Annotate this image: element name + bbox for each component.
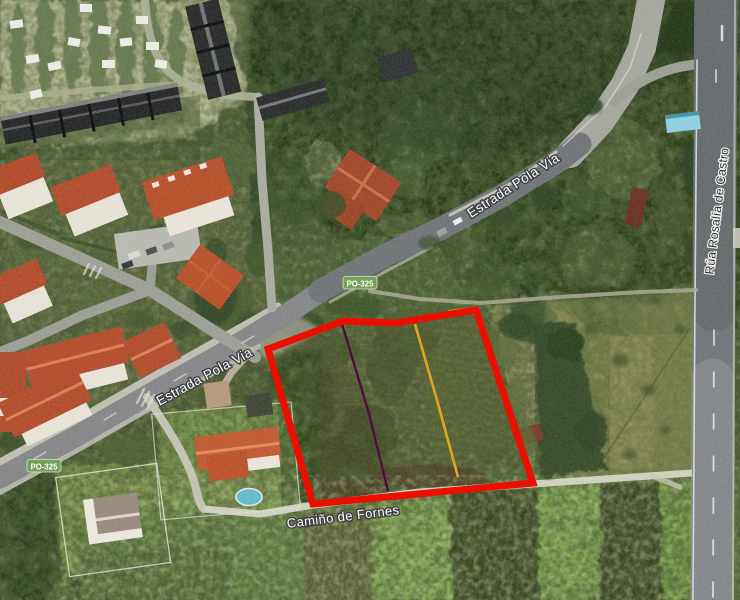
svg-text:PO-325: PO-325 bbox=[31, 462, 59, 471]
svg-text:PO-325: PO-325 bbox=[347, 280, 375, 289]
